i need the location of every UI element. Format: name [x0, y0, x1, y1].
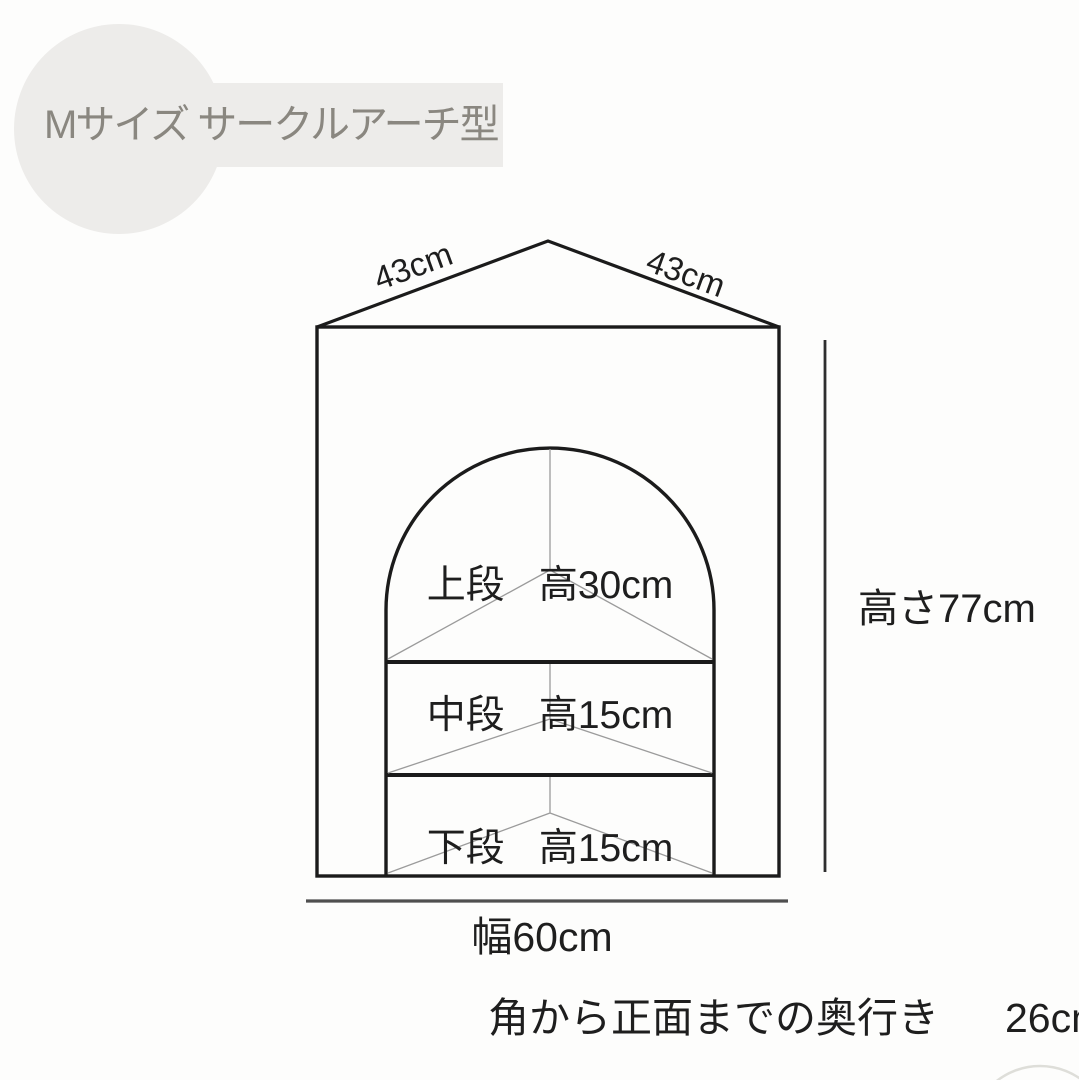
lower-shelf-name: 下段: [427, 828, 505, 870]
height-dimension: 高さ77cm: [858, 587, 1036, 631]
faint-corner-circle: [970, 1066, 1079, 1080]
middle-shelf-height: 高15cm: [539, 695, 673, 737]
depth-caption-value: 26cm: [1005, 996, 1079, 1040]
middle-shelf-label: 中段 高15cm: [386, 695, 714, 737]
upper-shelf-label: 上段 高30cm: [386, 565, 714, 607]
lower-shelf-label: 下段 高15cm: [386, 828, 714, 870]
middle-shelf-name: 中段: [427, 695, 505, 737]
upper-shelf-name: 上段: [427, 565, 505, 607]
top-section-corner-lines: [388, 449, 712, 659]
product-dimension-diagram: Mサイズ サークルアーチ型 43cm 43cm 高さ77cm 上段 高30cm …: [0, 0, 1079, 1080]
depth-caption-text: 角から正面までの奥行き: [488, 996, 939, 1040]
width-dimension: 幅60cm: [471, 915, 612, 959]
upper-shelf-height: 高30cm: [539, 565, 673, 607]
lower-shelf-height: 高15cm: [539, 828, 673, 870]
depth-caption: 角から正面までの奥行き 26cm: [488, 996, 1079, 1040]
